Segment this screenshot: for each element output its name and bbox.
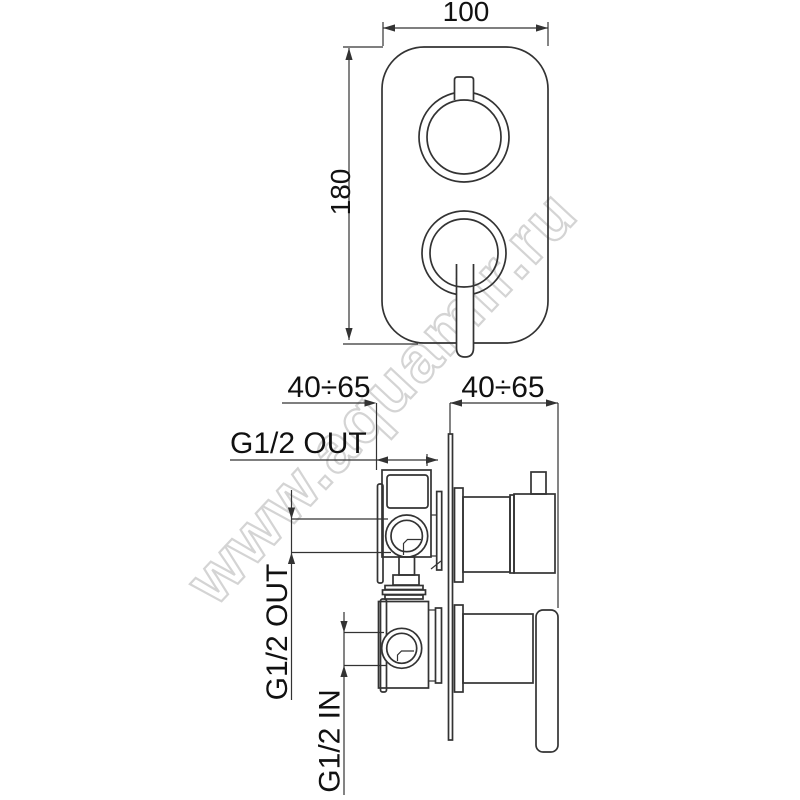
arrowhead [377,456,389,463]
arrowhead [383,24,395,31]
thermostat-trim-side [455,472,556,582]
stem-base [393,575,419,585]
backing-flange [437,492,442,571]
mounting-bracket [378,484,384,583]
drawing-canvas: www.aquamir.ru 100 [0,0,800,800]
cartridge-stem [399,557,415,575]
trim-sleeve [463,497,510,572]
inlet-port-outer [382,628,422,668]
thermostat-knob-side [514,494,555,573]
valve-body-top-unit [378,470,442,585]
width-dimension: 100 [383,0,548,46]
finished-wall-line [449,434,453,740]
threaded-connector [383,586,426,600]
lever-handle-side [536,610,558,752]
arrowhead [340,666,347,678]
thermostat-knob-outer-ring [419,92,509,182]
top-outlet-boss [387,475,428,508]
arrowhead [345,328,352,340]
top-outlet-label: G1/2 OUT [230,427,367,460]
knob-index-tab-side [531,472,546,494]
side-outlet-port-outer [386,515,428,557]
thermostat-knob-inner-ring [427,100,501,174]
arrowhead [288,553,295,565]
valve-body-bottom-unit [379,599,442,692]
top-outlet-callout: G1/2 OUT [230,427,438,466]
thread-ring [385,586,423,590]
trim-sleeve [463,614,533,683]
thermostat-knob [419,77,509,182]
arrowhead [546,399,558,406]
arrowhead [536,24,548,31]
escutcheon [455,605,464,692]
arrowhead [345,48,352,60]
technical-drawing: www.aquamir.ru 100 [0,0,800,800]
thermostat-knob-index-tab [455,77,474,100]
escutcheon [455,488,464,582]
thread-ring [383,590,426,595]
arrowhead [450,399,462,406]
arrowhead [340,621,347,633]
depth-dim-right-label: 40÷65 [461,371,544,404]
height-dimension: 180 [325,47,418,344]
inlet-label: G1/2 IN [314,689,347,792]
inlet-callout: G1/2 IN [314,612,388,795]
arrowhead [426,456,438,463]
width-dim-label: 100 [443,0,490,27]
lever-stem [457,264,474,357]
depth-dim-left-label: 40÷65 [287,371,370,404]
height-dim-label: 180 [325,169,356,216]
lever-trim-side [455,605,559,752]
side-outlet-label: G1/2 OUT [261,564,294,701]
backing-flange [436,608,442,683]
thread-ring [385,595,423,599]
